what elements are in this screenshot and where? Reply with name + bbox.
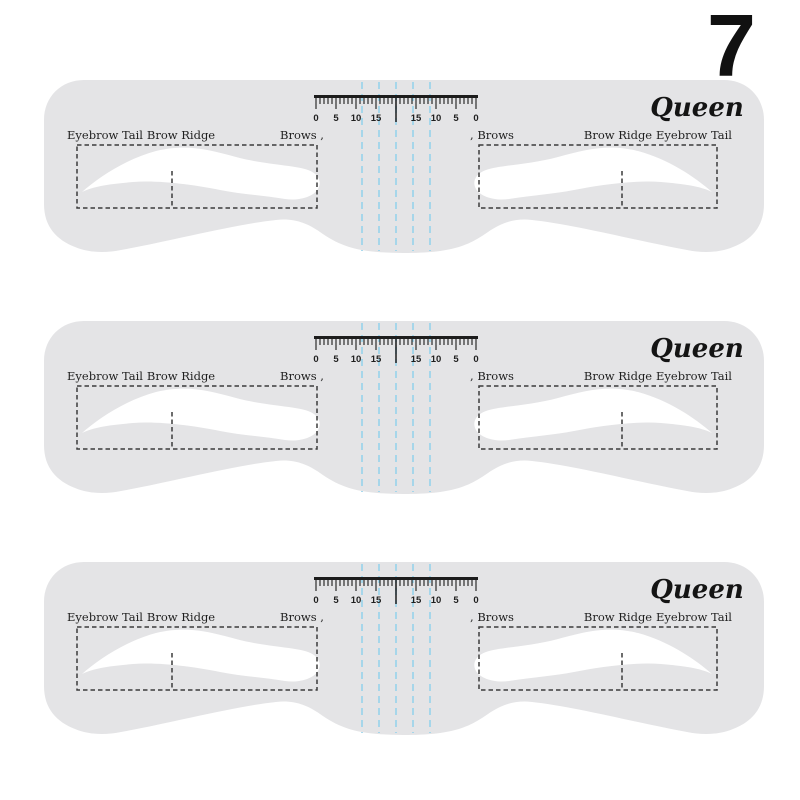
ruler-number: 5 xyxy=(453,354,459,365)
ruler-number: 10 xyxy=(431,354,442,365)
variant-number: 7 xyxy=(707,2,756,90)
ruler-number: 0 xyxy=(473,595,478,606)
stencil-graphic: 0 5 10 15 15 10 5 0 Eyebrow T xyxy=(44,562,764,740)
label-eyebrow-tail-right: Eyebrow Tail xyxy=(656,369,732,383)
label-brows-left: Brows , xyxy=(280,128,324,142)
stencil-2: 0 5 10 15 15 10 5 0 Eyebrow T xyxy=(44,321,764,499)
label-eyebrow-tail-left: Eyebrow Tail xyxy=(67,610,143,624)
label-eyebrow-tail-right: Eyebrow Tail xyxy=(656,128,732,142)
label-brows-right: , Brows xyxy=(470,369,514,383)
brand-logo: Queen xyxy=(650,93,744,123)
label-brow-ridge-left: Brow Ridge xyxy=(147,369,215,383)
ruler-number: 5 xyxy=(333,595,339,606)
ruler-number: 0 xyxy=(313,354,318,365)
label-brow-ridge-left: Brow Ridge xyxy=(147,610,215,624)
ruler-number: 10 xyxy=(351,113,362,124)
ruler-number: 15 xyxy=(411,113,422,124)
ruler-number: 15 xyxy=(371,354,382,365)
label-eyebrow-tail-left: Eyebrow Tail xyxy=(67,128,143,142)
label-eyebrow-tail-left: Eyebrow Tail xyxy=(67,369,143,383)
ruler-number: 15 xyxy=(371,595,382,606)
ruler-number: 10 xyxy=(431,113,442,124)
ruler-number: 15 xyxy=(411,354,422,365)
ruler-number: 5 xyxy=(453,595,459,606)
ruler-number: 5 xyxy=(333,354,339,365)
label-brow-ridge-right: Brow Ridge xyxy=(584,610,652,624)
label-brows-right: , Brows xyxy=(470,610,514,624)
ruler-number: 15 xyxy=(371,113,382,124)
stencil-graphic: 0 5 10 15 15 10 5 0 Eyebrow T xyxy=(44,321,764,499)
ruler-number: 10 xyxy=(351,595,362,606)
ruler-number: 10 xyxy=(431,595,442,606)
stencil-1: 0 5 10 15 15 10 5 0 Eyebrow T xyxy=(44,80,764,258)
label-brow-ridge-right: Brow Ridge xyxy=(584,369,652,383)
ruler-number: 0 xyxy=(313,595,318,606)
ruler-number: 10 xyxy=(351,354,362,365)
brand-logo: Queen xyxy=(650,575,744,605)
label-brows-right: , Brows xyxy=(470,128,514,142)
ruler-number: 5 xyxy=(333,113,339,124)
ruler-number: 0 xyxy=(473,113,478,124)
ruler-number: 0 xyxy=(473,354,478,365)
ruler-number: 0 xyxy=(313,113,318,124)
label-brows-left: Brows , xyxy=(280,369,324,383)
label-brows-left: Brows , xyxy=(280,610,324,624)
label-eyebrow-tail-right: Eyebrow Tail xyxy=(656,610,732,624)
ruler-number: 5 xyxy=(453,113,459,124)
ruler-number: 15 xyxy=(411,595,422,606)
stencil-3: 0 5 10 15 15 10 5 0 Eyebrow T xyxy=(44,562,764,740)
brand-logo: Queen xyxy=(650,334,744,364)
stencil-graphic: 0 5 10 15 15 10 5 0 Eyebrow T xyxy=(44,80,764,258)
label-brow-ridge-left: Brow Ridge xyxy=(147,128,215,142)
label-brow-ridge-right: Brow Ridge xyxy=(584,128,652,142)
